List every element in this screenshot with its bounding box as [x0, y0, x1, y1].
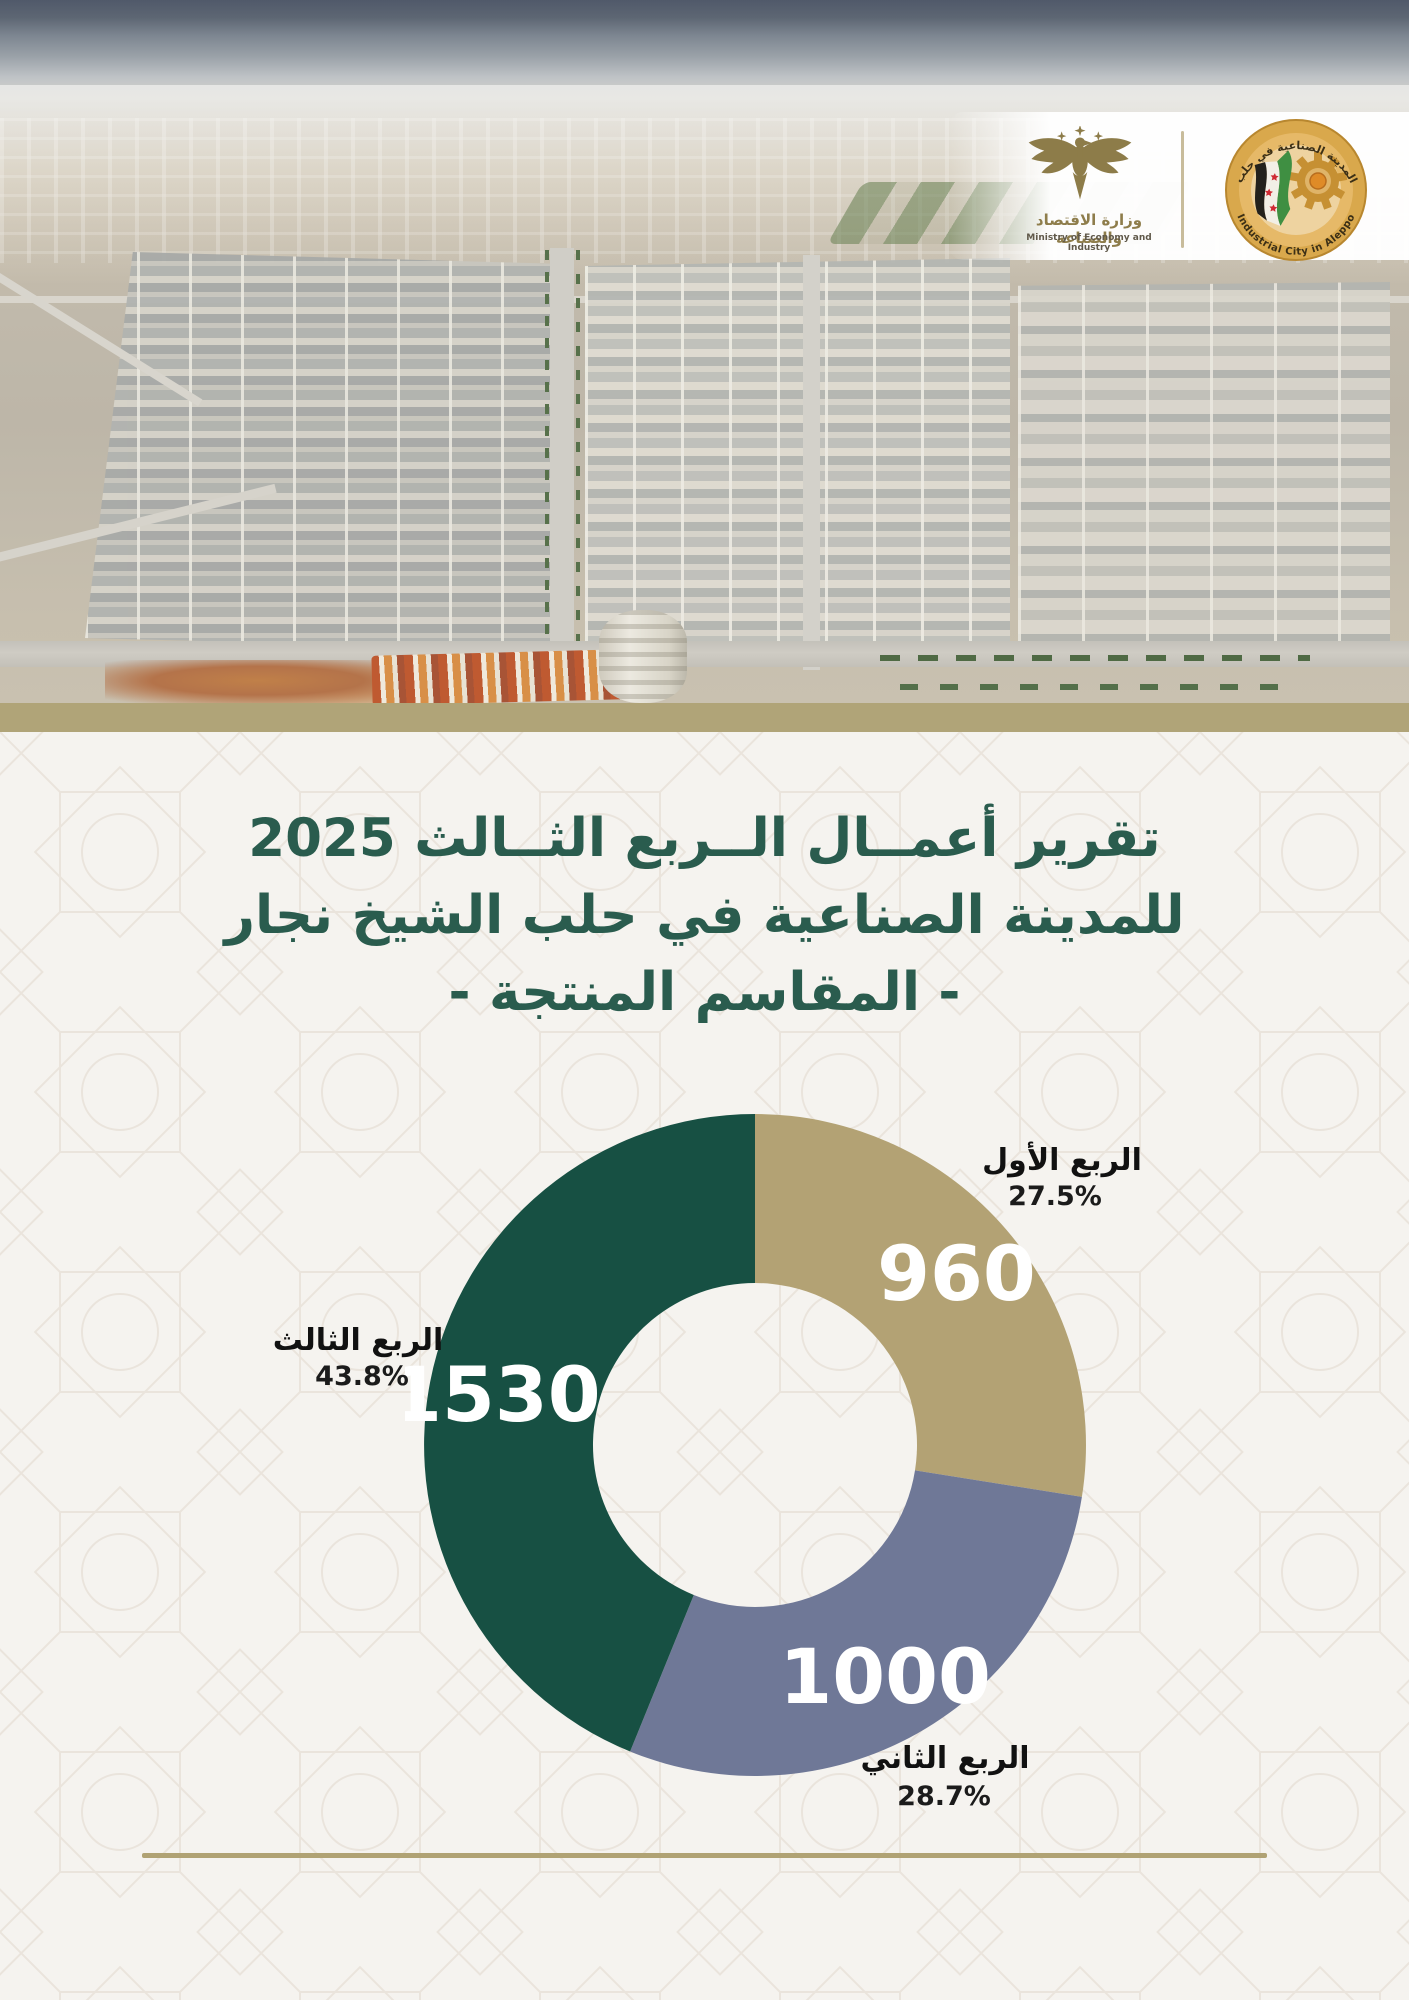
label-q2-percent: 28.7% [834, 1782, 1054, 1812]
report-page: وزارة الاقتصاد والصناعة Ministry of Econ… [0, 0, 1409, 2000]
photo-city-block-far-right [1018, 282, 1390, 654]
title-line-1: تقرير أعمــال الــربع الثــالث 2025 [0, 800, 1409, 877]
tan-separator-band [0, 703, 1409, 732]
donut-value-1: 1000 [779, 1632, 991, 1721]
label-q3-percent: 43.8% [252, 1362, 472, 1392]
photo-city-block-right [585, 258, 1010, 658]
photo-tree-row [880, 655, 1310, 661]
logo-divider [1181, 131, 1184, 248]
donut-value-0: 960 [877, 1229, 1036, 1318]
photo-city-block-left [85, 252, 563, 650]
photo-avenue-2 [803, 255, 820, 670]
ministry-eagle-icon [1024, 126, 1136, 214]
photo-main-avenue [550, 248, 574, 676]
report-title: تقرير أعمــال الــربع الثــالث 2025 للمد… [0, 800, 1409, 1031]
photo-tree-line [545, 250, 549, 675]
photo-tree-row [900, 684, 1300, 690]
photo-construction-tower [599, 610, 687, 703]
ministry-name-english: Ministry of Economy and Industry [1004, 233, 1174, 253]
label-q2-name: الربع الثاني [835, 1742, 1055, 1776]
title-line-3: - المقاسم المنتجة - [0, 954, 1409, 1031]
aerial-photo [0, 0, 1409, 703]
donut-segment-1 [630, 1470, 1082, 1776]
label-q3-name: الربع الثالث [248, 1324, 468, 1358]
title-line-2: للمدينة الصناعية في حلب الشيخ نجار [0, 877, 1409, 954]
industrial-city-logo: المدينة الصناعية في حلب Industrial City … [1225, 119, 1367, 261]
bottom-divider-rule [142, 1853, 1267, 1858]
label-q1-name: الربع الأول [952, 1144, 1172, 1178]
photo-tree-line [576, 250, 580, 675]
label-q1-percent: 27.5% [945, 1182, 1165, 1212]
